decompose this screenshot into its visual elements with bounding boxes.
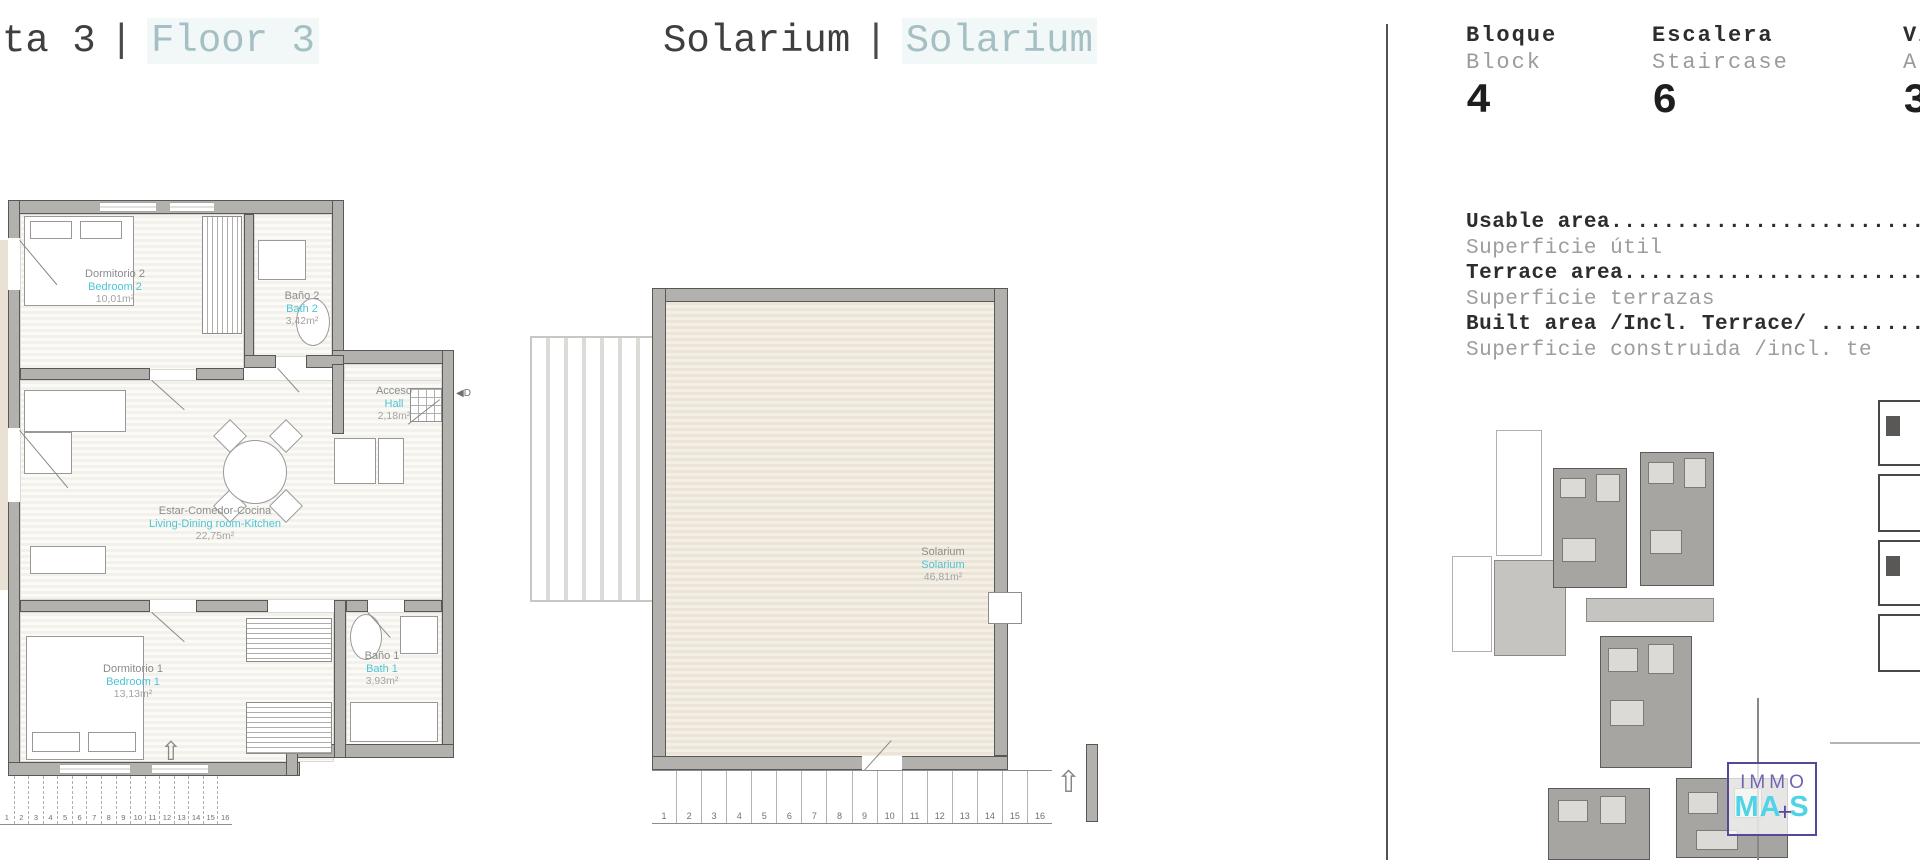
- stair-cell: 5: [751, 771, 776, 823]
- room-name-es: Acceso: [344, 385, 444, 398]
- courtyard: [1650, 530, 1682, 554]
- courtyard: [1596, 474, 1620, 502]
- stair-cell: 3: [701, 771, 726, 823]
- terrace-area-line: Terrace area............................…: [1466, 261, 1920, 287]
- info-label-es: Viv: [1903, 22, 1920, 49]
- pillow: [30, 221, 72, 239]
- courtyard: [1648, 644, 1674, 674]
- wall: [332, 200, 344, 364]
- usable-area-line-es: Superficie útil: [1466, 236, 1920, 262]
- courtyard: [1560, 478, 1586, 498]
- courtyard: [1608, 648, 1638, 672]
- title-solarium-en: Solarium: [902, 18, 1097, 64]
- room-label-solarium: Solarium Solarium 46,81m²: [883, 546, 1003, 584]
- info-value-block: 4: [1466, 78, 1557, 124]
- info-apartment: Viv Apa 3D: [1903, 22, 1920, 124]
- wall: [332, 350, 454, 364]
- pillow: [32, 732, 80, 752]
- room-label-living: Estar-Comedor-Cocina Living-Dining room-…: [135, 505, 295, 543]
- area-summary: Usable area.............................…: [1466, 210, 1920, 364]
- window: [100, 202, 156, 212]
- wardrobe: [246, 702, 332, 754]
- stair-cell: 16: [1027, 771, 1052, 823]
- stair-cell: 11: [902, 771, 927, 823]
- stair-cell: 7: [801, 771, 826, 823]
- building: [1548, 788, 1650, 860]
- bath-sink: [258, 240, 306, 280]
- stair-cell: 10: [877, 771, 902, 823]
- title-floor-en: Floor 3: [147, 18, 319, 64]
- wall: [652, 288, 666, 770]
- kitchen-counter: [378, 438, 404, 484]
- room-name-en: Bath 1: [332, 663, 432, 676]
- stair-cell: 6: [72, 776, 87, 824]
- room-name-en: Living-Dining room-Kitchen: [135, 518, 295, 531]
- title-separator: |: [110, 19, 133, 63]
- stair-cell: 4: [726, 771, 751, 823]
- stairs-up-arrow-icon: ⇧: [1056, 768, 1081, 798]
- room-label-bath1: Baño 1 Bath 1 3,93m²: [332, 650, 432, 688]
- dining-table: [223, 440, 287, 504]
- door-gap: [8, 428, 20, 502]
- page-title-solarium: Solarium|Solarium: [663, 18, 1097, 64]
- stair-cell: 5: [57, 776, 72, 824]
- logo-ma: MA: [1734, 791, 1781, 823]
- stair-cell: 1: [0, 776, 14, 824]
- room-area: 10,01m²: [55, 293, 175, 306]
- door-gap: [8, 238, 20, 290]
- usable-area-line: Usable area.............................…: [1466, 210, 1920, 236]
- courtyard: [1600, 796, 1626, 824]
- stair-cell: 12: [927, 771, 952, 823]
- room-name-en: Bedroom 1: [73, 676, 193, 689]
- terrace-area-line-es: Superficie terrazas: [1466, 287, 1920, 313]
- wall: [652, 288, 1008, 302]
- wardrobe: [246, 618, 332, 662]
- panel-divider: [1386, 24, 1388, 860]
- room-name-en: Bedroom 2: [55, 281, 175, 294]
- stair-cell: 13: [952, 771, 977, 823]
- info-label-en: Block: [1466, 49, 1557, 76]
- plus-icon: +: [1778, 798, 1794, 826]
- info-label-en: Apa: [1903, 49, 1920, 76]
- stair-number-strip: 12345678910111213141516: [652, 770, 1052, 824]
- sofa: [24, 390, 126, 432]
- floor-plan-sheet: { "colors":{"teal":"#4cc5d6","title_mute…: [0, 0, 1920, 860]
- room-area: 3,42m²: [258, 315, 346, 328]
- room-name-es: Solarium: [883, 546, 1003, 559]
- wall: [244, 355, 276, 368]
- stair-cell: 7: [86, 776, 101, 824]
- tv-unit: [30, 546, 106, 574]
- sofa-chaise: [24, 432, 72, 474]
- room-area: 22,75m²: [135, 530, 295, 543]
- stair-number-strip: 12345678910111213141516: [0, 776, 232, 825]
- immomas-logo: IMMO MA+S: [1727, 762, 1817, 836]
- kitchen-counter: [334, 438, 376, 484]
- courtyard: [1562, 538, 1596, 562]
- title-floor-es: ta 3: [2, 19, 96, 63]
- wardrobe: [202, 216, 242, 334]
- stair-cell: 8: [101, 776, 116, 824]
- wall: [994, 288, 1008, 756]
- building-outline: [1496, 430, 1542, 556]
- room-name-es: Estar-Comedor-Cocina: [135, 505, 295, 518]
- door-gap: [862, 756, 902, 770]
- stairs-up-arrow-icon: ⇧: [160, 738, 182, 764]
- room-label-bedroom1: Dormitorio 1 Bedroom 1 13,13m²: [73, 663, 193, 701]
- wall: [244, 214, 254, 367]
- courtyard: [1684, 458, 1706, 488]
- stair-cell: 14: [977, 771, 1002, 823]
- wall: [652, 756, 1008, 770]
- wall: [196, 368, 244, 380]
- plan-fragment-detail: [1886, 556, 1900, 576]
- stair-cell: 1: [652, 771, 676, 823]
- stair-cell: 4: [43, 776, 58, 824]
- built-area-line-es: Superficie construida /incl. te: [1466, 338, 1920, 364]
- shower: [350, 702, 438, 742]
- title-solarium-es: Solarium: [663, 19, 850, 63]
- info-label-es: Bloque: [1466, 22, 1557, 49]
- room-label-bedroom2: Dormitorio 2 Bedroom 2 10,01m²: [55, 268, 175, 306]
- solarium-floor: [666, 302, 994, 756]
- info-value-staircase: 6: [1652, 78, 1789, 124]
- site-path-line: [1830, 742, 1920, 744]
- pergola-slats: [530, 336, 660, 602]
- stair-cell: 2: [676, 771, 701, 823]
- side-terrace: [0, 240, 8, 590]
- built-area-line: Built area /Incl. Terrace/ .............…: [1466, 312, 1920, 338]
- room-area: 46,81m²: [883, 571, 1003, 584]
- page-title-floor: ta 3|Floor 3: [2, 18, 319, 64]
- room-label-hall: Acceso Hall 2,18m²: [344, 385, 444, 423]
- room-label-bath2: Baño 2 Bath 2 3,42m²: [258, 290, 346, 328]
- pillow: [88, 732, 136, 752]
- info-value-apartment: 3D: [1903, 78, 1920, 124]
- info-label-en: Staircase: [1652, 49, 1789, 76]
- room-name-en: Solarium: [883, 559, 1003, 572]
- building-link: [1586, 598, 1714, 622]
- stair-cell: 8: [826, 771, 851, 823]
- stair-cell: 2: [14, 776, 29, 824]
- stair-cell: 9: [116, 776, 131, 824]
- stair-cell: 11: [145, 776, 160, 824]
- courtyard: [1558, 800, 1588, 822]
- courtyard: [1610, 700, 1644, 726]
- stair-cell: 10: [130, 776, 145, 824]
- courtyard: [1688, 792, 1718, 814]
- room-name-es: Baño 2: [258, 290, 346, 303]
- room-name-es: Dormitorio 1: [73, 663, 193, 676]
- wall-notch: [988, 592, 1022, 624]
- entrance-door-marker: ◀D: [456, 388, 471, 399]
- window: [60, 764, 130, 774]
- adjacent-plan-fragment: [1878, 474, 1920, 532]
- room-area: 2,18m²: [344, 410, 444, 423]
- title-separator: |: [864, 19, 887, 63]
- room-area: 13,13m²: [73, 688, 193, 701]
- pillow: [80, 221, 122, 239]
- wall: [332, 364, 344, 434]
- room-name-en: Hall: [344, 398, 444, 411]
- plan-fragment-detail: [1886, 416, 1900, 436]
- stair-cell: 6: [776, 771, 801, 823]
- wall: [1086, 744, 1098, 822]
- wall: [346, 600, 368, 612]
- wall: [404, 600, 442, 612]
- stair-cell: 16: [217, 776, 232, 824]
- logo-text-mas: MA+S: [1729, 794, 1815, 822]
- room-area: 3,93m²: [332, 675, 432, 688]
- courtyard: [1648, 462, 1674, 484]
- stair-cell: 9: [852, 771, 877, 823]
- adjacent-plan-fragment: [1878, 614, 1920, 672]
- bath-sink: [400, 616, 438, 654]
- room-name-es: Baño 1: [332, 650, 432, 663]
- stair-cell: 15: [203, 776, 218, 824]
- room-name-es: Dormitorio 2: [55, 268, 175, 281]
- stair-cell: 12: [159, 776, 174, 824]
- wall: [20, 368, 150, 380]
- info-label-es: Escalera: [1652, 22, 1789, 49]
- wall: [196, 600, 268, 612]
- building-outline: [1452, 556, 1492, 652]
- stair-cell: 13: [174, 776, 189, 824]
- stair-cell: 14: [188, 776, 203, 824]
- info-staircase: Escalera Staircase 6: [1652, 22, 1789, 124]
- stair-cell: 15: [1002, 771, 1027, 823]
- stair-cell: 3: [28, 776, 43, 824]
- info-block: Bloque Block 4: [1466, 22, 1557, 124]
- window: [170, 202, 214, 212]
- room-name-en: Bath 2: [258, 303, 346, 316]
- wall: [20, 600, 150, 612]
